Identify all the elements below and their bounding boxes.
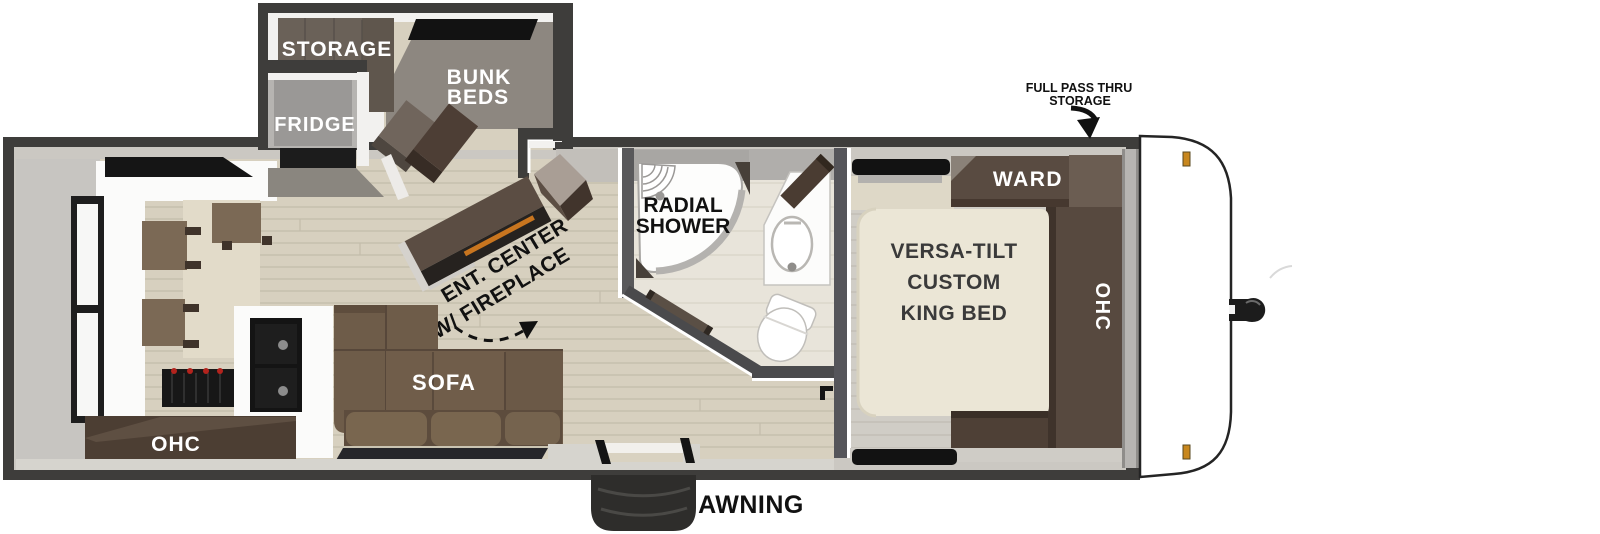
svg-text:SOFA: SOFA [412, 370, 476, 395]
svg-text:STORAGE: STORAGE [1049, 94, 1111, 108]
svg-text:RADIAL: RADIAL [643, 194, 722, 217]
svg-text:CUSTOM: CUSTOM [907, 271, 1001, 294]
svg-text:STORAGE: STORAGE [282, 38, 392, 61]
svg-text:BEDS: BEDS [447, 86, 509, 109]
svg-text:KING BED: KING BED [901, 302, 1008, 325]
svg-text:OHC: OHC [1091, 283, 1113, 332]
svg-text:VERSA-TILT: VERSA-TILT [890, 240, 1017, 263]
svg-text:FRIDGE: FRIDGE [274, 114, 356, 136]
svg-text:FULL PASS THRU: FULL PASS THRU [1026, 81, 1132, 95]
svg-text:SHOWER: SHOWER [636, 215, 731, 238]
svg-text:WARD: WARD [993, 168, 1063, 191]
svg-text:OHC: OHC [151, 433, 201, 456]
svg-text:AWNING: AWNING [698, 491, 804, 519]
